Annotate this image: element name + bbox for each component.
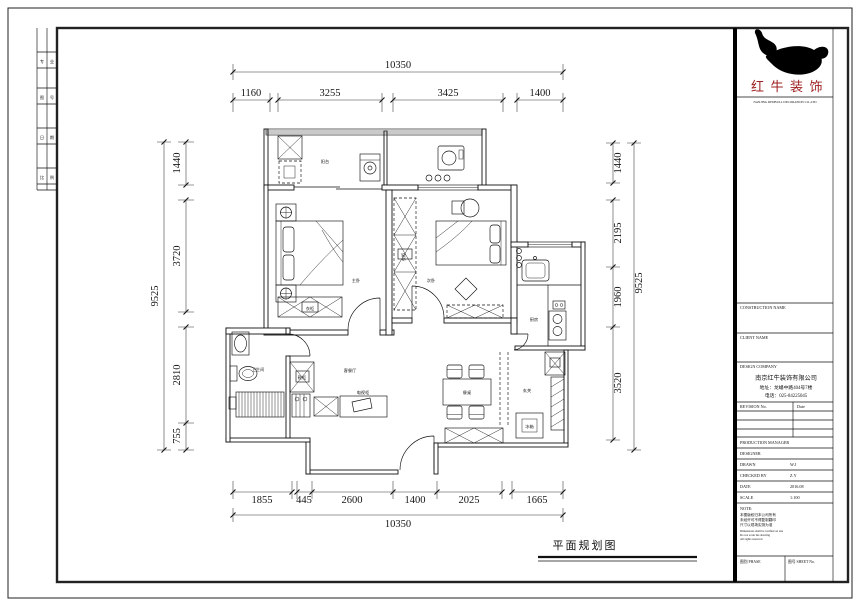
drawing-title: 平面规划图 <box>553 538 618 552</box>
dim-left-seg: 1440 <box>172 153 183 174</box>
room-label-entry: 玄关 <box>523 387 531 394</box>
furniture-master-bedroom <box>276 204 343 317</box>
furniture-dining <box>443 352 565 443</box>
dim-top-seg: 1160 <box>241 88 262 99</box>
dim-bottom-seg: 2025 <box>459 495 480 506</box>
windows <box>266 129 572 247</box>
dim-right-seg: 2195 <box>613 223 624 244</box>
furniture-bathroom <box>229 332 284 417</box>
strip-cell-label: 业 <box>50 58 54 64</box>
dim-bottom-seg: 445 <box>296 495 312 506</box>
row-drawn-value: W.J <box>790 462 797 467</box>
furniture-second-bedroom <box>394 198 506 318</box>
furniture-balcony <box>278 136 464 183</box>
sliding-door <box>294 187 382 189</box>
note-line-small: All rights reserved <box>740 537 763 541</box>
drawing-frame <box>8 8 852 598</box>
row-checked: CHECKED BY <box>740 473 767 478</box>
room-labels: 阳台 主卧 次卧 厨房 卫生间 客餐厅 玄关 衣柜 衣柜 餐桌 冰箱 鞋柜 电视… <box>252 158 538 430</box>
room-label-master: 主卧 <box>352 277 360 284</box>
dim-right-total: 9525 <box>634 273 645 294</box>
cell-sheet: 图号 SHEET No. <box>788 559 815 564</box>
room-label-balcony: 阳台 <box>321 158 329 165</box>
toilet <box>230 366 237 381</box>
furniture-label-fridge: 冰箱 <box>525 423 533 430</box>
door-entry <box>400 436 434 470</box>
dim-left-seg: 3720 <box>172 246 183 267</box>
dim-bottom-seg: 1665 <box>527 495 548 506</box>
row-drawn: DRAWN <box>740 462 755 467</box>
chair <box>469 365 484 378</box>
furniture-label-wardrobe: 衣柜 <box>306 305 314 312</box>
row-production-manager: PRODUCTION MANAGER <box>740 440 789 445</box>
drawing-title-block: 平面规划图 <box>538 538 697 561</box>
room-label-bathroom: 卫生间 <box>252 366 265 373</box>
furniture-living <box>290 362 387 417</box>
dimension-bottom: 1855 445 2600 1400 2025 1665 10350 <box>231 481 566 530</box>
dim-right-seg: 1960 <box>613 287 624 308</box>
company-logo-icon <box>755 29 828 74</box>
label-construction-name: CONSTRUCTION NAME <box>740 305 786 310</box>
label-revision-no: REVISION No. <box>740 404 767 409</box>
furniture-label-table: 餐桌 <box>463 389 472 396</box>
walls <box>226 129 585 474</box>
company-logo-text: 红牛装饰 <box>751 79 829 94</box>
dim-top-total: 10350 <box>385 60 411 71</box>
row-date-value: 2016.08 <box>790 484 804 489</box>
bed <box>276 221 343 285</box>
row-scale: SCALE <box>740 495 754 500</box>
strip-cell-label: 图 <box>40 95 44 101</box>
dim-bottom-total: 10350 <box>385 519 411 530</box>
strip-cell-label: 日 <box>40 135 44 141</box>
washing-machine <box>360 154 380 181</box>
chair <box>469 406 484 419</box>
room-label-bedroom2: 次卧 <box>427 277 435 284</box>
row-scale-value: 1:100 <box>790 495 800 500</box>
label-design-company: DESIGN COMPANY <box>740 364 777 369</box>
company-name: 南京红牛装饰有限公司 <box>755 374 817 382</box>
door-bathroom <box>288 334 310 356</box>
dim-bottom-seg: 1400 <box>405 495 426 506</box>
label-revision-date: Date <box>797 404 805 409</box>
tv <box>352 398 372 412</box>
furniture-label-tv-cabinet: 电视柜 <box>357 389 370 396</box>
strip-cell-label: 期 <box>50 135 54 141</box>
furniture-kitchen <box>517 249 582 347</box>
pouf <box>455 278 477 300</box>
note-line: 本图版权归本公司所有 <box>740 512 776 517</box>
binding-strip: 专 业 图 号 日 期 比 例 <box>37 28 57 190</box>
furniture-label-wardrobe: 衣柜 <box>400 253 407 261</box>
dimension-right: 1440 2195 1960 3520 9525 <box>606 141 645 453</box>
company-tagline: NANJING REDBULL DECORATION CO.,LTD <box>753 100 817 105</box>
strip-cell-label: 例 <box>50 174 54 181</box>
chair <box>447 406 462 419</box>
dimension-top: 10350 1160 3255 3425 1400 <box>231 60 566 112</box>
strip-cell-label: 号 <box>50 95 54 101</box>
dim-top-seg: 3425 <box>438 88 459 99</box>
dim-left-total: 9525 <box>150 286 161 307</box>
door-master <box>348 298 380 330</box>
room-label-kitchen: 厨房 <box>530 316 538 323</box>
note-line: 未经许可不得复制翻印 <box>740 517 776 522</box>
row-designer: DESIGNER <box>740 451 761 456</box>
cad-drawing: 专 业 图 号 日 期 比 例 10350 1160 3255 3425 140… <box>0 0 860 608</box>
door-bedroom2 <box>412 286 444 318</box>
row-date: DATE <box>740 484 751 489</box>
tall-cabinet <box>551 377 564 430</box>
cell-phase: 图别 PHASE <box>740 559 761 564</box>
furniture-label-shoe-cabinet: 鞋柜 <box>298 374 306 381</box>
dim-left-seg: 755 <box>172 428 183 444</box>
dim-left-seg: 2810 <box>172 365 183 386</box>
floor-plan: 阳台 主卧 次卧 厨房 卫生间 客餐厅 玄关 衣柜 衣柜 餐桌 冰箱 鞋柜 电视… <box>226 129 585 474</box>
note-line: 尺寸以现场实测为准 <box>740 522 773 527</box>
dim-bottom-seg: 1855 <box>252 495 273 506</box>
chair <box>447 365 462 378</box>
company-address: 地址：龙蟠中路404号7楼 <box>760 384 813 391</box>
strip-cell-label: 专 <box>40 58 44 65</box>
strip-cell-label: 比 <box>40 174 44 181</box>
title-block: 红牛装饰 NANJING REDBULL DECORATION CO.,LTD … <box>733 28 833 582</box>
dim-right-seg: 1440 <box>613 153 624 174</box>
dim-bottom-seg: 2600 <box>342 495 363 506</box>
dimension-left: 9525 1440 3720 2810 755 <box>150 140 194 453</box>
row-checked-value: Z.Y <box>790 473 797 478</box>
dim-top-seg: 1400 <box>530 88 551 99</box>
label-client-name: CLIENT NAME <box>740 335 769 340</box>
sideboard <box>445 428 503 443</box>
room-label-living: 客餐厅 <box>344 367 357 374</box>
dim-top-seg: 3255 <box>320 88 341 99</box>
dim-right-seg: 3520 <box>613 373 624 394</box>
company-phone: 电话：025-84225045 <box>765 392 808 399</box>
doors <box>288 286 528 470</box>
note-title: NOTE: <box>740 506 752 511</box>
cad-floor-plan-viewport: 专 业 图 号 日 期 比 例 10350 1160 3255 3425 140… <box>0 0 860 608</box>
